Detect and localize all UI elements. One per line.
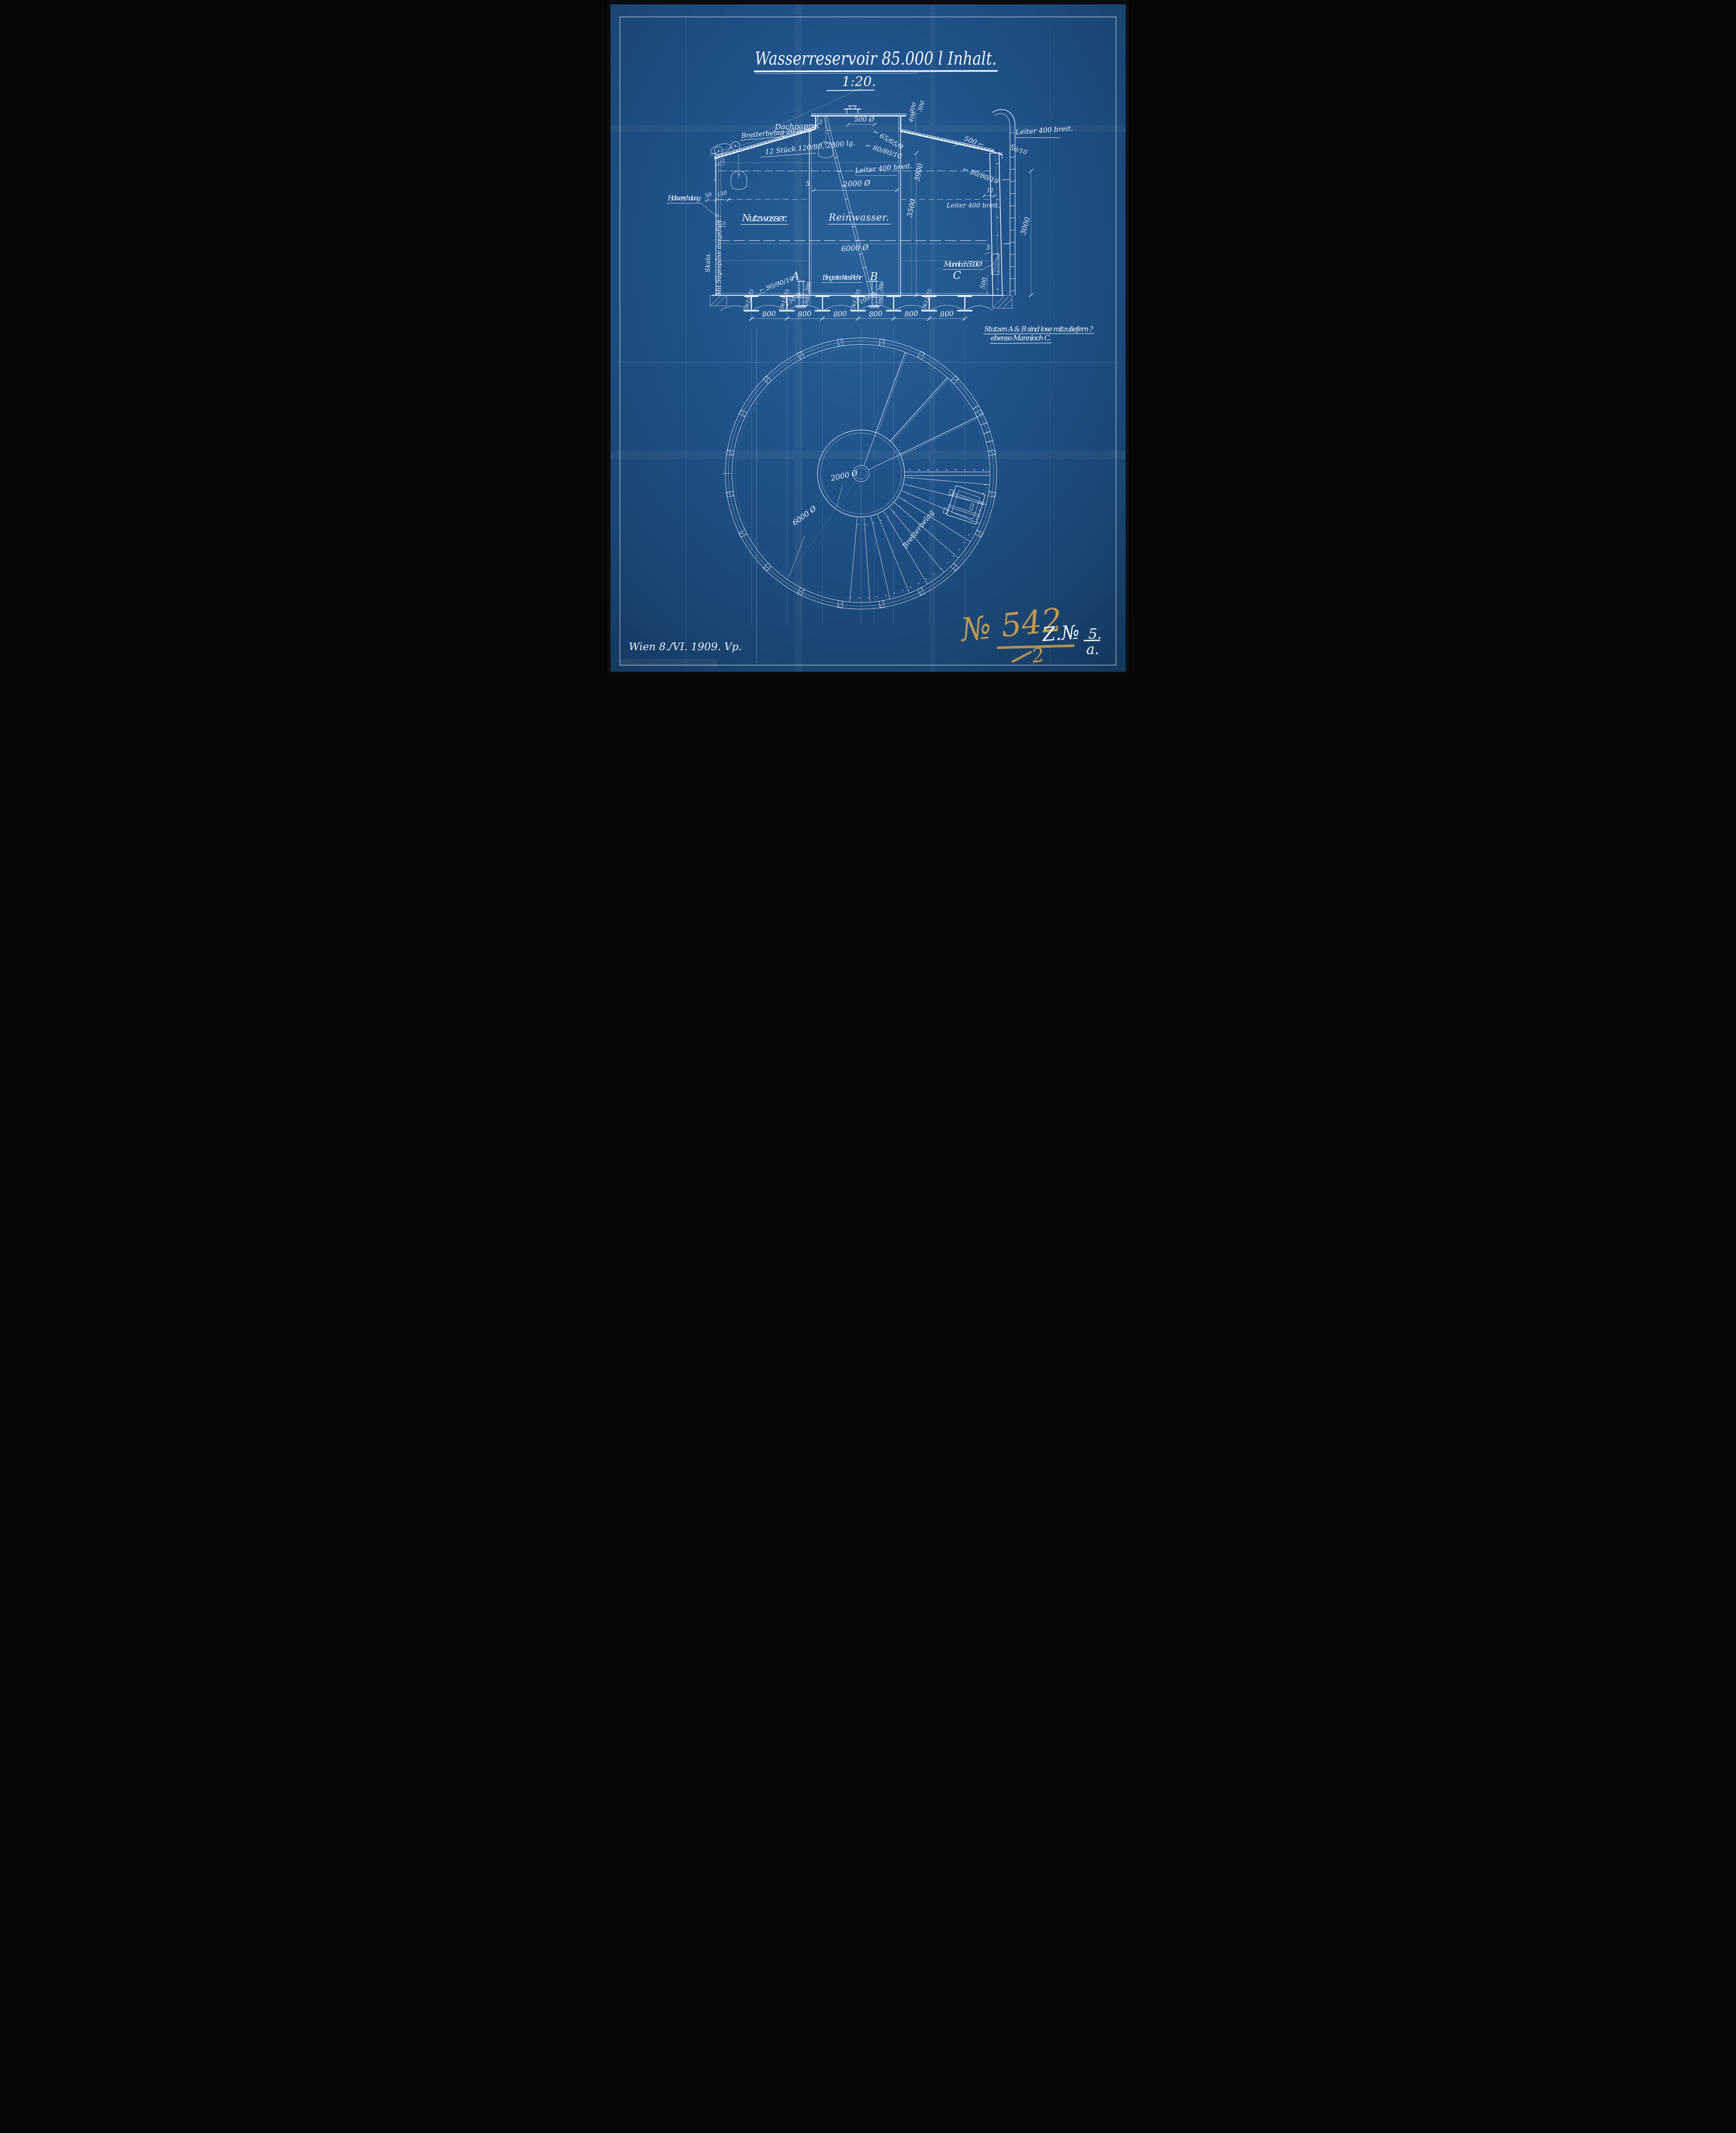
dim-800-2: 800: [797, 309, 812, 318]
paper-light-patch: [620, 659, 717, 667]
dim-800-1: 800: [762, 309, 776, 318]
label-mannloch-c: C: [953, 269, 961, 282]
zeichnung-mark: Z.№: [1041, 621, 1080, 646]
dim-6000: 6000 Ø: [841, 244, 869, 253]
label-stutzen-b: B: [869, 270, 878, 282]
page-title: Wasserreservoir 85.000 l Inhalt.: [755, 48, 997, 69]
dim-5-rechts: 5: [986, 244, 991, 252]
dim-kuppel: 500 Ø: [854, 116, 875, 123]
dim-12: 12: [987, 187, 994, 194]
label-leiter-wand: Leiter 400 breit.: [946, 202, 1000, 209]
blueprint-sheet: Wasserreservoir 85.000 l Inhalt. 1:20.: [608, 0, 1128, 674]
label-nutzwasser: Nutzwasser.: [742, 212, 787, 224]
dim-3: 3: [818, 119, 822, 125]
note-line2: ebenso Mannloch C.: [991, 334, 1051, 342]
note-line1: Stutzen A & B sind lose mitzuliefern ?: [984, 325, 1093, 333]
label-holzverschalung: Holzverschalung: [667, 195, 701, 202]
label-saegespaene: Mit Sägespäne ausgefüllt ?: [715, 214, 722, 296]
dim-2000: 2000 Ø: [842, 179, 871, 189]
blatt-bottom: a.: [1086, 641, 1099, 657]
date-signature: Wien 8./VI. 1909. Vp.: [629, 640, 742, 653]
blatt-top: 5.: [1088, 625, 1102, 642]
label-skala: Skala.: [704, 253, 712, 273]
dim-5-links: 5: [806, 180, 810, 188]
blueprint-canvas: Wasserreservoir 85.000 l Inhalt. 1:20.: [608, 0, 1128, 674]
dim-800-4: 800: [869, 309, 883, 318]
dim-800-5: 800: [904, 309, 919, 318]
label-mannloch: Mannloch 500 Ø: [944, 260, 983, 268]
label-reinwasser: Reinwasser.: [829, 212, 889, 223]
label-eingestecktes-rohr: Eingestecktes Rohr: [822, 274, 863, 282]
dim-800-6: 800: [940, 309, 954, 318]
drawing-scale: 1:20.: [842, 74, 876, 90]
dim-800-3: 800: [833, 309, 847, 318]
